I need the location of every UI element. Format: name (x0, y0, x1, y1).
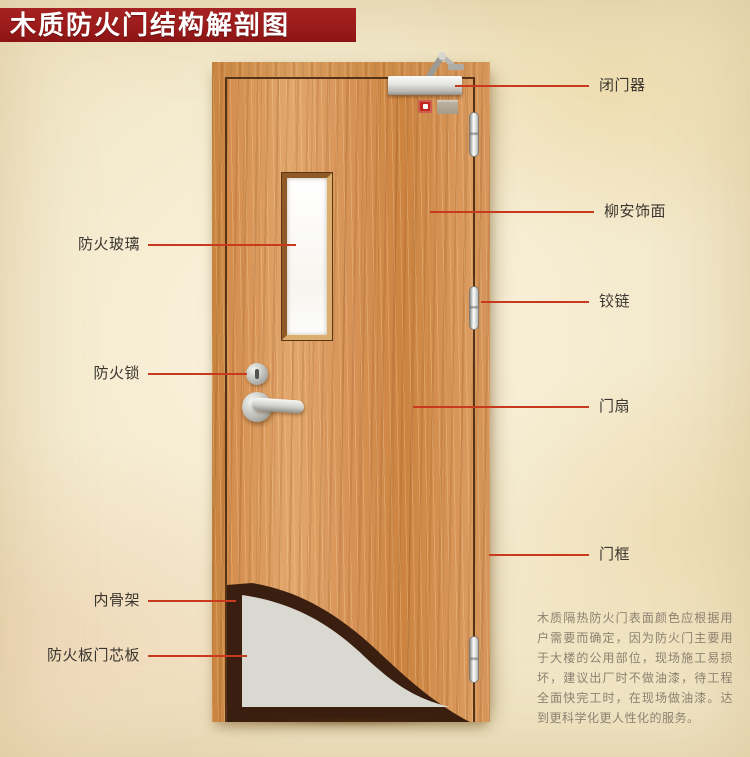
callout-veneer: 柳安饰面 (430, 201, 666, 223)
leader-line (430, 211, 594, 213)
door-frame (212, 62, 490, 722)
door-closer-body (388, 76, 462, 95)
door-closer-plate (437, 100, 458, 114)
leader-line (455, 85, 589, 87)
leader-line (148, 655, 247, 657)
title-banner: 木质防火门结构解剖图 (0, 8, 356, 42)
callout-hinge: 铰链 (481, 291, 630, 313)
callout-label: 柳安饰面 (604, 201, 666, 223)
hinge-top (469, 112, 479, 157)
callout-label: 防火锁 (40, 363, 140, 385)
description-note: 木质隔热防火门表面颜色应根据用户需要而确定，因为防火门主要用于大楼的公用部位，现… (537, 608, 733, 728)
diagram-page: 木质防火门结构解剖图 闭门器 柳安饰面 (0, 0, 750, 757)
fire-glass-window (282, 173, 332, 340)
hinge-bottom (469, 636, 479, 683)
callout-label: 门扇 (599, 396, 630, 418)
leader-line (148, 600, 236, 602)
leader-line (148, 244, 296, 246)
callout-fire-glass: 防火玻璃 (40, 234, 296, 256)
callout-fire-lock: 防火锁 (40, 363, 247, 385)
callout-label: 闭门器 (599, 75, 646, 97)
callout-door-leaf: 门扇 (413, 396, 630, 418)
callout-label: 门框 (599, 544, 630, 566)
callout-door-closer: 闭门器 (455, 75, 646, 97)
page-title: 木质防火门结构解剖图 (10, 12, 290, 38)
leader-line (148, 373, 247, 375)
door-shadow (204, 719, 498, 729)
callout-label: 铰链 (599, 291, 630, 313)
callout-door-frame: 门框 (489, 544, 630, 566)
fire-lock-cylinder (246, 363, 268, 385)
hinge-middle (469, 286, 479, 330)
callout-label: 防火板门芯板 (40, 645, 140, 667)
door-closer-red-badge (418, 100, 432, 113)
callout-label: 内骨架 (40, 590, 140, 612)
leader-line (481, 301, 589, 303)
callout-label: 防火玻璃 (40, 234, 140, 256)
leader-line (413, 406, 589, 408)
callout-fire-board-core: 防火板门芯板 (40, 645, 247, 667)
callout-inner-skeleton: 内骨架 (40, 590, 236, 612)
leader-line (489, 554, 589, 556)
